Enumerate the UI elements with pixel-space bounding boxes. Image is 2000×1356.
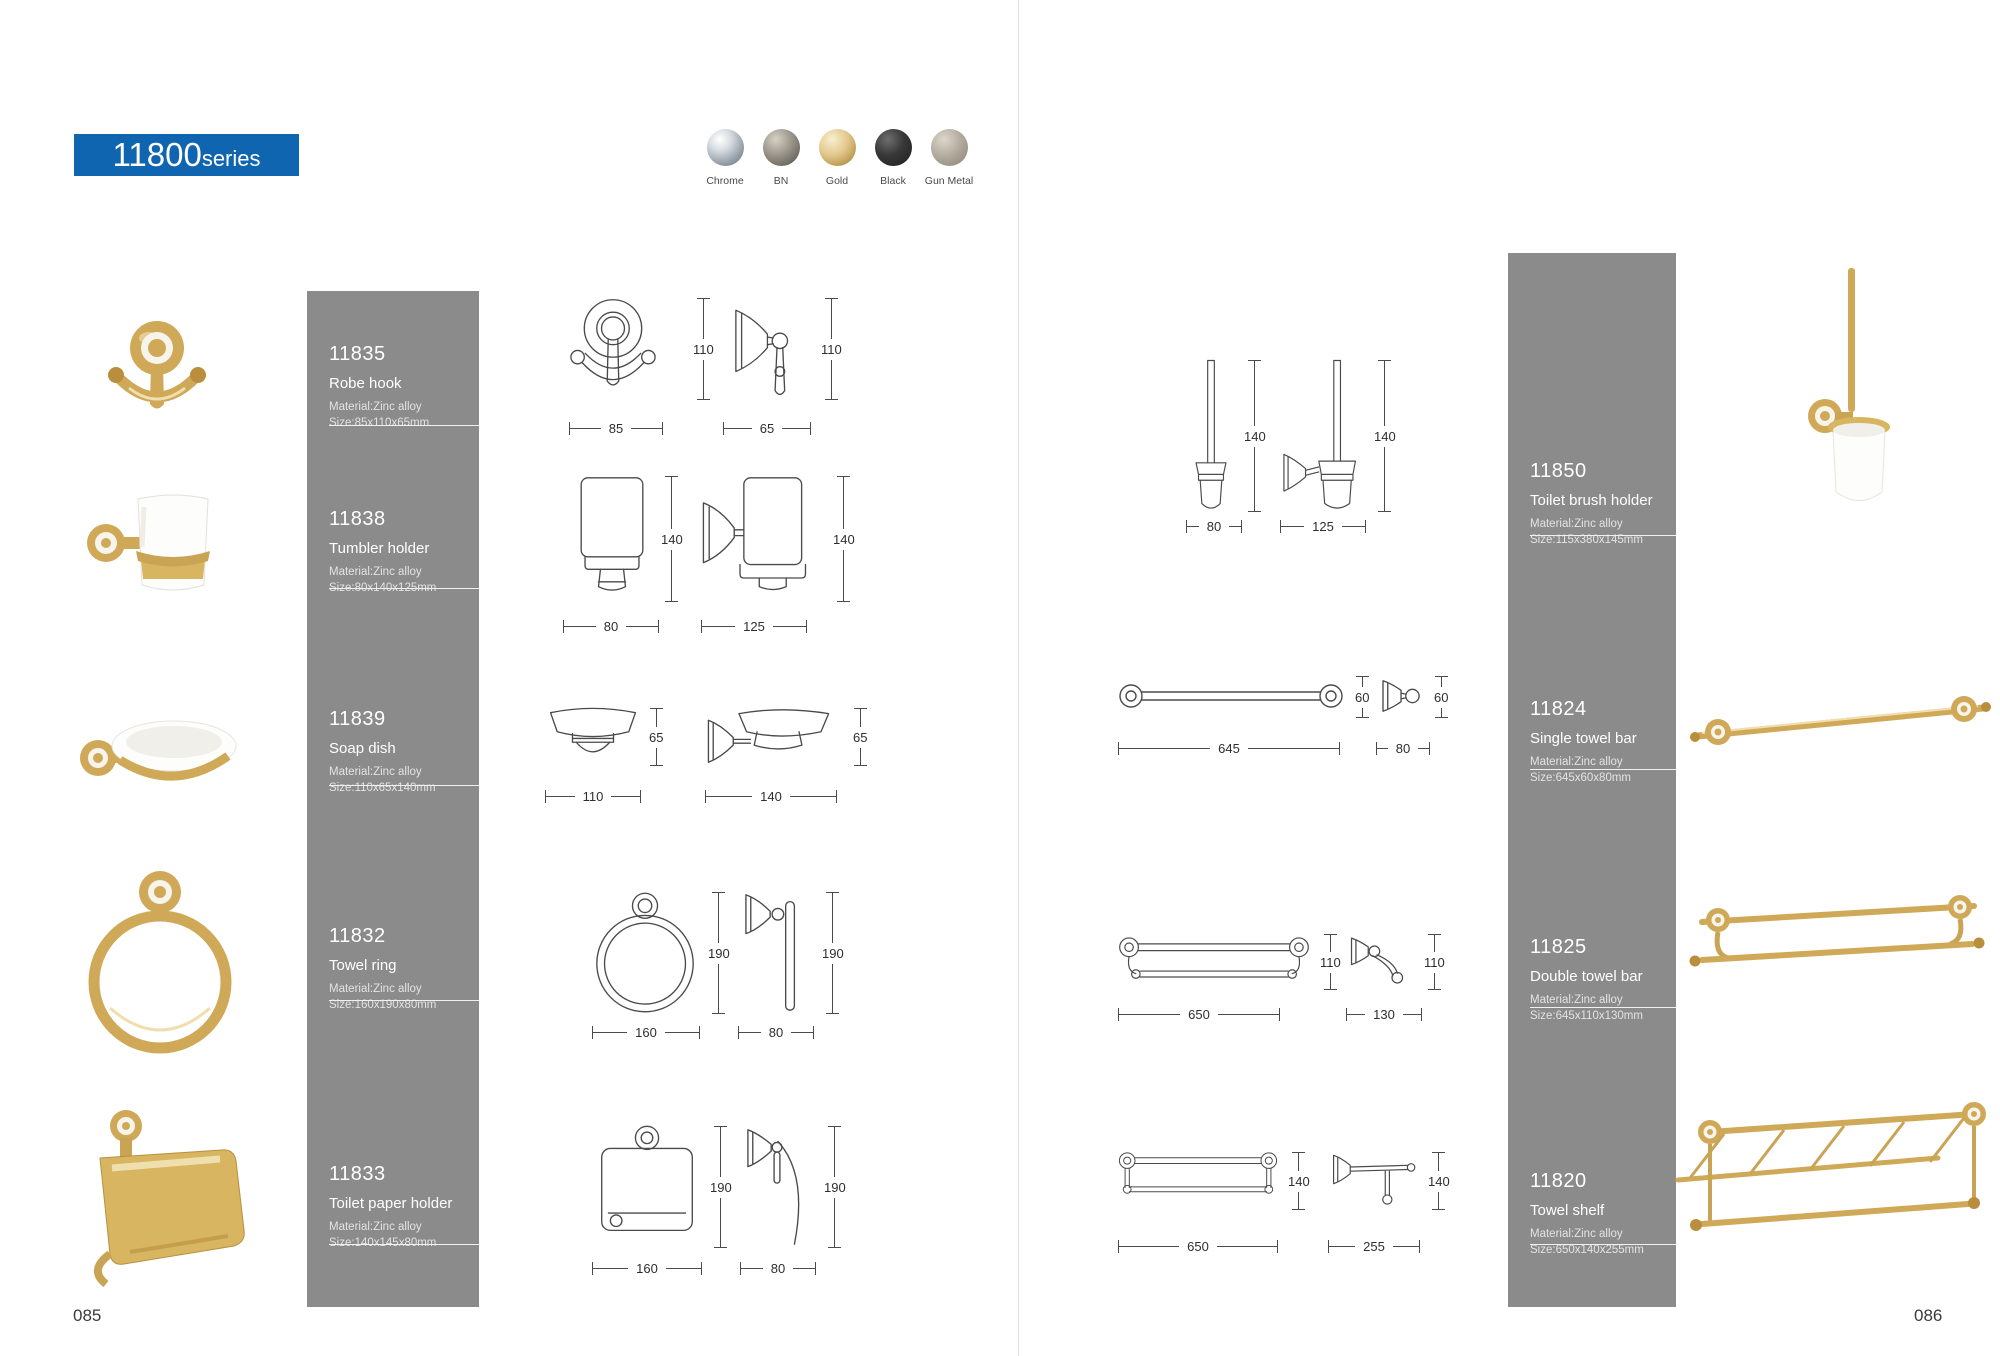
- dimension-label: 140: [1374, 426, 1396, 447]
- dimension-label: 65: [752, 422, 782, 435]
- dimension-label: 130: [1365, 1008, 1403, 1021]
- soap-dish-product-photo: [76, 704, 240, 804]
- product-size: Size:645x110x130mm: [1530, 1009, 1670, 1025]
- chrome-swatch-icon: [707, 129, 744, 166]
- tumbler-side-drawing: [697, 474, 809, 604]
- horizontal-dimension: 125: [701, 620, 807, 633]
- toilet-brush-drawing-row: 140 140 80 125: [1186, 356, 1431, 534]
- vertical-dimension: 110: [693, 298, 714, 400]
- dimension-label: 160: [627, 1026, 665, 1039]
- single-towel-bar-drawing-row: 60 60 645 80: [1118, 666, 1463, 766]
- dimension-label: 645: [1210, 742, 1248, 755]
- dimension-label: 650: [1179, 1240, 1217, 1253]
- product-name: Double towel bar: [1530, 968, 1670, 985]
- soap-dish-front-drawing: [547, 706, 639, 768]
- robe-hook-product-photo: [95, 312, 217, 434]
- finish-swatches: Chrome BN Gold Black Gun Metal: [702, 129, 972, 187]
- product-code: 11850: [1530, 460, 1670, 483]
- dimension-label: 80: [761, 1026, 791, 1039]
- towel-ring-front-drawing: [592, 890, 698, 1016]
- dimension-label: 125: [1304, 520, 1342, 533]
- product-code: 11832: [329, 925, 473, 948]
- product-code: 11820: [1530, 1170, 1670, 1193]
- panel-separator: [1530, 769, 1676, 770]
- product-material: Material:Zinc alloy: [1530, 517, 1670, 533]
- product-entry-11825: 11825 Double towel bar Material:Zinc all…: [1530, 936, 1670, 1024]
- horizontal-dimension: 140: [705, 790, 837, 803]
- dimension-label: 140: [833, 529, 855, 550]
- vertical-dimension: 190: [822, 892, 844, 1014]
- horizontal-dimension: 80: [738, 1026, 814, 1039]
- vertical-dimension: 140: [1374, 360, 1396, 512]
- double-towel-bar-product-photo: [1682, 888, 1992, 1013]
- product-entry-11835: 11835 Robe hook Material:Zinc alloy Size…: [329, 343, 473, 431]
- product-material: Material:Zinc alloy: [329, 565, 473, 581]
- horizontal-dimension: 255: [1328, 1240, 1420, 1253]
- dimension-label: 110: [693, 339, 714, 360]
- dimension-label: 190: [822, 943, 844, 964]
- horizontal-dimension: 130: [1346, 1008, 1422, 1021]
- finish-gold: Gold: [814, 129, 860, 187]
- toilet-brush-front-drawing: [1186, 358, 1236, 516]
- dimension-label: 110: [575, 790, 612, 803]
- page-divider: [1018, 0, 1019, 1356]
- horizontal-dimension: 80: [1186, 520, 1242, 533]
- panel-separator: [329, 588, 479, 589]
- single-bar-side-drawing: [1378, 677, 1426, 715]
- vertical-dimension: 140: [833, 476, 855, 602]
- towel-ring-product-photo: [86, 864, 234, 1062]
- dimension-label: 190: [708, 943, 730, 964]
- vertical-dimension: 60: [1434, 676, 1448, 718]
- towel-shelf-front-drawing: [1118, 1152, 1278, 1199]
- product-entry-11838: 11838 Tumbler holder Material:Zinc alloy…: [329, 508, 473, 596]
- vertical-dimension: 190: [710, 1126, 732, 1248]
- catalog-spread: 11800series Chrome BN Gold Black Gun Met…: [0, 0, 2000, 1356]
- vertical-dimension: 110: [1424, 934, 1445, 990]
- product-name: Toilet paper holder: [329, 1195, 473, 1212]
- dimension-label: 65: [853, 727, 867, 748]
- tumbler-holder-drawing-row: 140 140 80 125: [557, 468, 887, 636]
- dimension-label: 140: [752, 790, 790, 803]
- product-material: Material:Zinc alloy: [329, 400, 473, 416]
- robe-hook-drawing-row: 110 110 85 65: [557, 292, 887, 442]
- vertical-dimension: 110: [821, 298, 842, 400]
- finish-gunmetal: Gun Metal: [926, 129, 972, 187]
- paper-holder-front-drawing: [594, 1124, 700, 1250]
- gold-swatch-icon: [819, 129, 856, 166]
- left-product-panel: 11835 Robe hook Material:Zinc alloy Size…: [307, 291, 479, 1307]
- product-name: Soap dish: [329, 740, 473, 757]
- horizontal-dimension: 80: [1376, 742, 1430, 755]
- toilet-brush-side-drawing: [1280, 358, 1366, 516]
- tumbler-holder-product-photo: [82, 487, 234, 619]
- dimension-label: 65: [649, 727, 663, 748]
- double-bar-side-drawing: [1348, 936, 1414, 986]
- dimension-label: 255: [1355, 1240, 1393, 1253]
- dimension-label: 80: [1388, 742, 1418, 755]
- product-code: 11833: [329, 1163, 473, 1186]
- panel-separator: [329, 1244, 479, 1245]
- product-name: Towel ring: [329, 957, 473, 974]
- product-entry-11833: 11833 Toilet paper holder Material:Zinc …: [329, 1163, 473, 1251]
- vertical-dimension: 190: [824, 1126, 846, 1248]
- product-material: Material:Zinc alloy: [329, 1220, 473, 1236]
- dimension-label: 85: [601, 422, 631, 435]
- left-page-number: 085: [73, 1306, 101, 1326]
- product-material: Material:Zinc alloy: [329, 982, 473, 998]
- vertical-dimension: 190: [708, 892, 730, 1014]
- finish-label: Gun Metal: [925, 175, 973, 187]
- horizontal-dimension: 160: [592, 1026, 700, 1039]
- dimension-label: 190: [824, 1177, 846, 1198]
- vertical-dimension: 140: [1428, 1152, 1450, 1210]
- dimension-label: 80: [596, 620, 626, 633]
- product-code: 11838: [329, 508, 473, 531]
- product-name: Robe hook: [329, 375, 473, 392]
- dimension-label: 125: [735, 620, 773, 633]
- horizontal-dimension: 65: [723, 422, 811, 435]
- robe-hook-side-drawing: [725, 294, 807, 404]
- toilet-brush-holder-product-photo: [1795, 264, 1910, 530]
- dimension-label: 110: [1320, 952, 1341, 973]
- vertical-dimension: 65: [649, 708, 663, 766]
- black-swatch-icon: [875, 129, 912, 166]
- finish-black: Black: [870, 129, 916, 187]
- horizontal-dimension: 650: [1118, 1008, 1280, 1021]
- vertical-dimension: 140: [1244, 360, 1266, 512]
- dimension-label: 140: [1428, 1171, 1450, 1192]
- product-code: 11839: [329, 708, 473, 731]
- dimension-label: 60: [1355, 687, 1369, 708]
- vertical-dimension: 140: [661, 476, 683, 602]
- single-bar-front-drawing: [1118, 676, 1344, 716]
- horizontal-dimension: 110: [545, 790, 641, 803]
- towel-ring-side-drawing: [742, 890, 808, 1016]
- panel-separator: [329, 785, 479, 786]
- double-towel-bar-drawing-row: 110 110 650 130: [1118, 928, 1453, 1036]
- vertical-dimension: 65: [853, 708, 867, 766]
- dimension-label: 140: [1244, 426, 1266, 447]
- finish-label: Gold: [826, 175, 848, 187]
- gunmetal-swatch-icon: [931, 129, 968, 166]
- dimension-label: 160: [628, 1262, 666, 1275]
- toilet-paper-holder-product-photo: [70, 1102, 252, 1294]
- product-entry-11839: 11839 Soap dish Material:Zinc alloy Size…: [329, 708, 473, 796]
- dimension-label: 140: [1288, 1171, 1310, 1192]
- tumbler-front-drawing: [573, 474, 651, 604]
- towel-ring-drawing-row: 190 190 160 80: [592, 886, 892, 1066]
- towel-shelf-side-drawing: [1330, 1152, 1418, 1207]
- soap-dish-side-drawing: [703, 706, 835, 768]
- panel-separator: [329, 425, 479, 426]
- horizontal-dimension: 80: [740, 1262, 816, 1275]
- product-name: Tumbler holder: [329, 540, 473, 557]
- panel-separator: [329, 1000, 479, 1001]
- horizontal-dimension: 80: [563, 620, 659, 633]
- product-size: Size:645x60x80mm: [1530, 771, 1670, 787]
- right-page-number: 086: [1914, 1306, 1942, 1326]
- dimension-label: 650: [1180, 1008, 1218, 1021]
- bn-swatch-icon: [763, 129, 800, 166]
- dimension-label: 140: [661, 529, 683, 550]
- series-banner: 11800series: [74, 134, 299, 176]
- soap-dish-drawing-row: 65 65 110 140: [545, 698, 897, 830]
- vertical-dimension: 140: [1288, 1152, 1310, 1210]
- finish-label: BN: [774, 175, 789, 187]
- horizontal-dimension: 645: [1118, 742, 1340, 755]
- product-name: Single towel bar: [1530, 730, 1670, 747]
- finish-bn: BN: [758, 129, 804, 187]
- dimension-label: 60: [1434, 687, 1448, 708]
- panel-separator: [1530, 535, 1676, 536]
- vertical-dimension: 60: [1355, 676, 1369, 718]
- double-bar-front-drawing: [1118, 936, 1310, 984]
- dimension-label: 110: [821, 339, 842, 360]
- dimension-label: 80: [1199, 520, 1229, 533]
- series-number: 11800: [112, 137, 201, 173]
- vertical-dimension: 110: [1320, 934, 1341, 990]
- right-product-panel: 11850 Toilet brush holder Material:Zinc …: [1508, 253, 1676, 1307]
- horizontal-dimension: 85: [569, 422, 663, 435]
- product-size: Size:85x110x65mm: [329, 416, 473, 432]
- finish-label: Black: [880, 175, 906, 187]
- horizontal-dimension: 160: [592, 1262, 702, 1275]
- product-name: Toilet brush holder: [1530, 492, 1670, 509]
- dimension-label: 80: [763, 1262, 793, 1275]
- product-entry-11824: 11824 Single towel bar Material:Zinc all…: [1530, 698, 1670, 786]
- finish-label: Chrome: [706, 175, 743, 187]
- towel-shelf-drawing-row: 140 140 650 255: [1118, 1146, 1453, 1268]
- series-suffix: series: [202, 146, 261, 172]
- single-towel-bar-product-photo: [1688, 670, 1993, 767]
- product-material: Material:Zinc alloy: [1530, 1227, 1670, 1243]
- toilet-paper-holder-drawing-row: 190 190 160 80: [592, 1120, 892, 1302]
- product-name: Towel shelf: [1530, 1202, 1670, 1219]
- product-code: 11824: [1530, 698, 1670, 721]
- finish-chrome: Chrome: [702, 129, 748, 187]
- robe-hook-front-drawing: [565, 294, 661, 404]
- horizontal-dimension: 125: [1280, 520, 1366, 533]
- product-size: Size:110x65x140mm: [329, 781, 473, 797]
- product-material: Material:Zinc alloy: [329, 765, 473, 781]
- dimension-label: 190: [710, 1177, 732, 1198]
- horizontal-dimension: 650: [1118, 1240, 1278, 1253]
- dimension-label: 110: [1424, 952, 1445, 973]
- towel-shelf-product-photo: [1668, 1088, 1995, 1303]
- panel-separator: [1530, 1007, 1676, 1008]
- product-code: 11835: [329, 343, 473, 366]
- product-code: 11825: [1530, 936, 1670, 959]
- panel-separator: [1530, 1244, 1676, 1245]
- paper-holder-side-drawing: [744, 1124, 810, 1250]
